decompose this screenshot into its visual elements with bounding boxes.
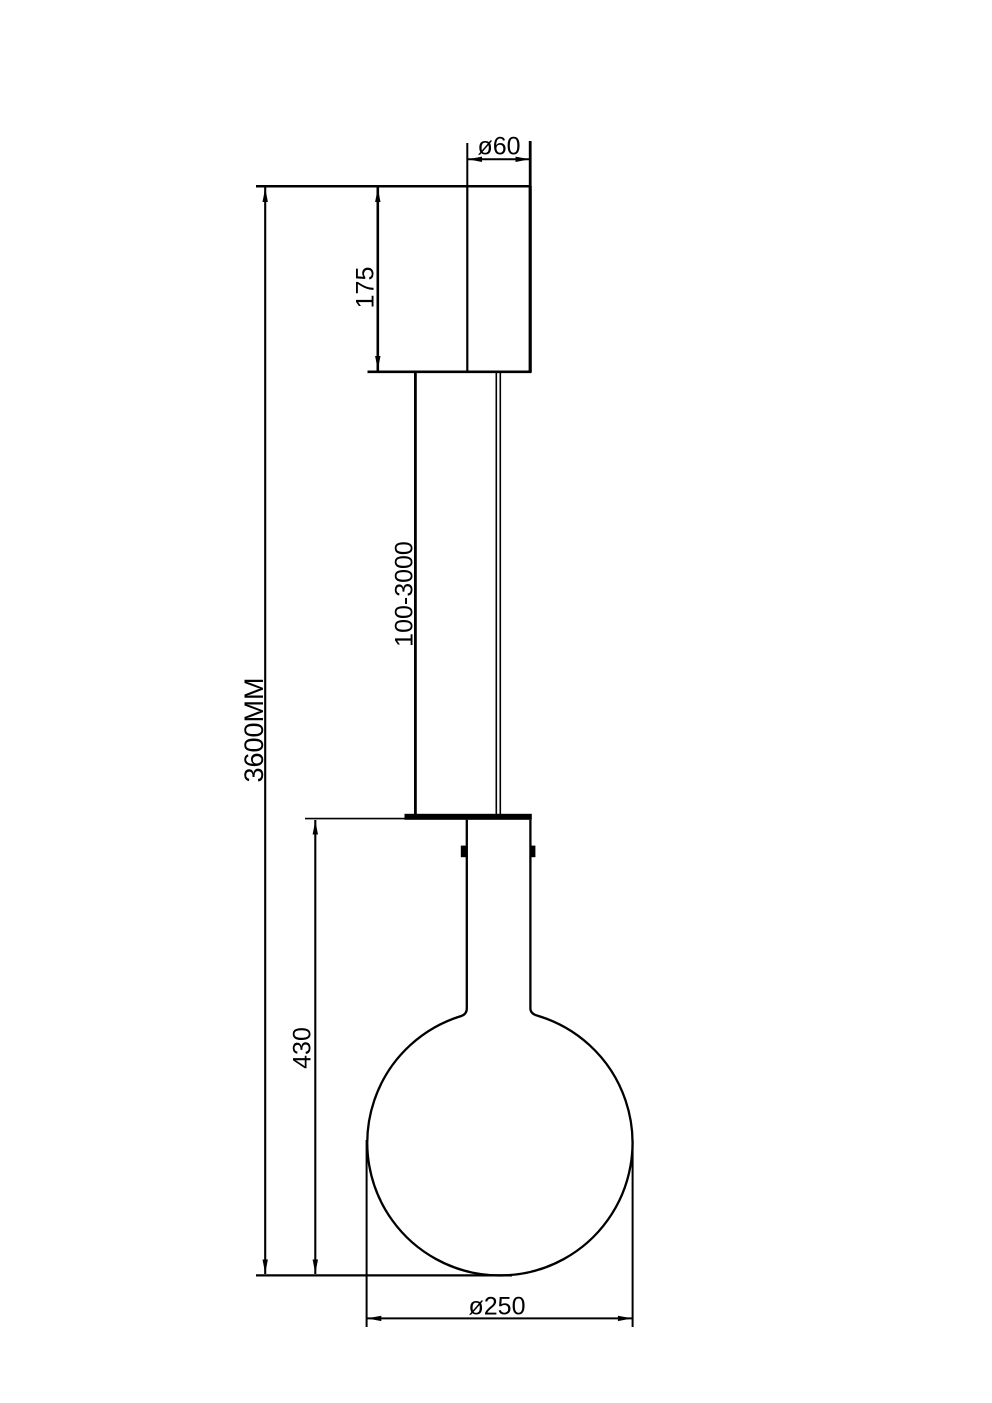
svg-text:3600MM: 3600MM bbox=[239, 677, 269, 782]
svg-text:ø60: ø60 bbox=[477, 133, 520, 161]
svg-text:100-3000: 100-3000 bbox=[391, 541, 419, 647]
svg-text:ø250: ø250 bbox=[469, 1293, 526, 1321]
svg-text:175: 175 bbox=[352, 267, 380, 309]
svg-text:430: 430 bbox=[289, 1027, 317, 1069]
